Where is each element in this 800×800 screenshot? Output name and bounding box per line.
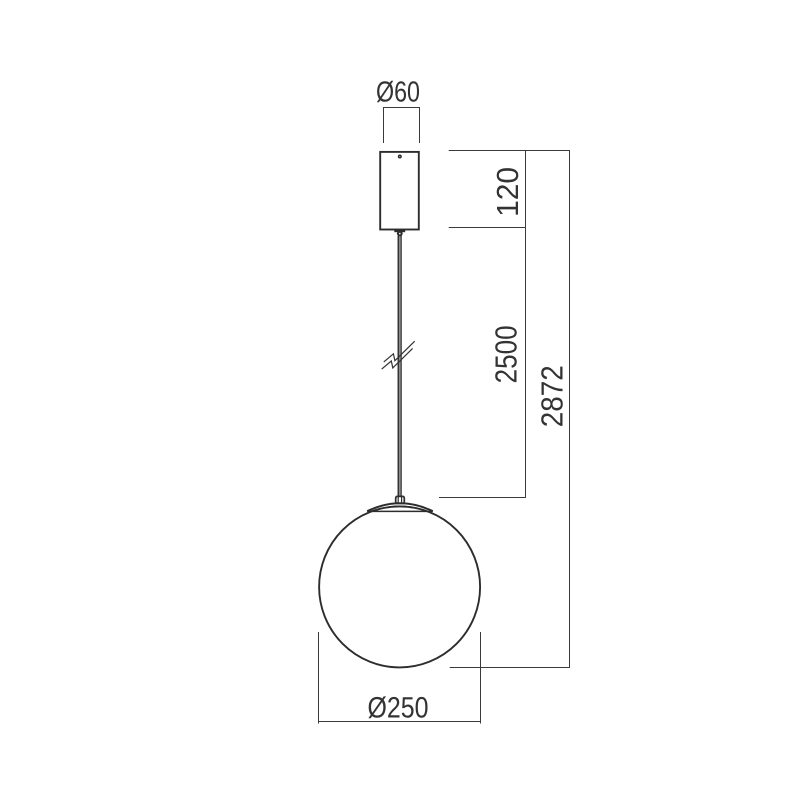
svg-text:Ø250: Ø250 xyxy=(368,692,429,725)
svg-text:120: 120 xyxy=(491,167,525,217)
svg-text:Ø60: Ø60 xyxy=(376,77,420,109)
svg-text:2872: 2872 xyxy=(535,365,569,427)
svg-text:2500: 2500 xyxy=(489,325,523,383)
